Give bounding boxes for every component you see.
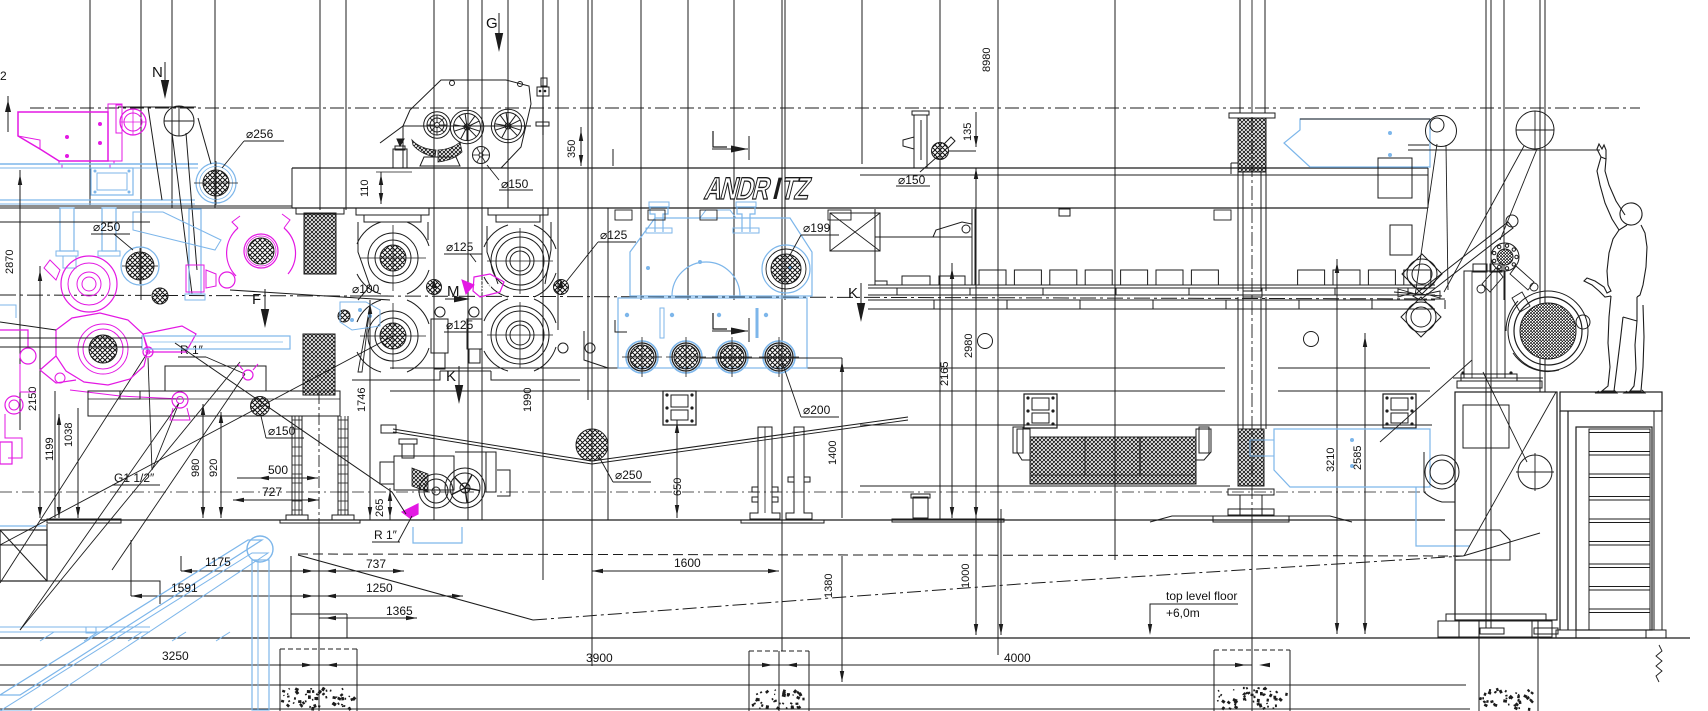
svg-text:1400: 1400 xyxy=(827,441,839,465)
svg-text:1000: 1000 xyxy=(960,564,972,588)
svg-text:G: G xyxy=(486,15,498,32)
svg-text:1038: 1038 xyxy=(63,423,75,447)
svg-text:top level floor: top level floor xyxy=(1166,589,1237,603)
svg-text:110: 110 xyxy=(359,179,371,197)
svg-text:N: N xyxy=(152,64,163,81)
svg-text:737: 737 xyxy=(366,557,386,571)
svg-text:⌀200: ⌀200 xyxy=(803,403,831,417)
svg-text:1199: 1199 xyxy=(44,437,56,461)
svg-text:1250: 1250 xyxy=(366,581,393,595)
svg-text:1365: 1365 xyxy=(386,604,413,618)
svg-text:1746: 1746 xyxy=(356,388,368,412)
svg-text:727: 727 xyxy=(262,485,282,499)
svg-text:⌀125: ⌀125 xyxy=(446,318,474,332)
svg-text:500: 500 xyxy=(268,463,288,477)
svg-text:R 1″: R 1″ xyxy=(374,528,398,542)
svg-text:920: 920 xyxy=(208,459,220,477)
svg-text:1600: 1600 xyxy=(674,556,701,570)
svg-text:650: 650 xyxy=(672,478,684,496)
svg-text:2150: 2150 xyxy=(27,387,39,411)
svg-text:1591: 1591 xyxy=(171,581,198,595)
svg-text:M: M xyxy=(447,283,460,300)
svg-text:2870: 2870 xyxy=(4,250,16,274)
svg-text:2165: 2165 xyxy=(939,362,951,386)
svg-text:⌀250: ⌀250 xyxy=(615,468,643,482)
svg-text:⌀100: ⌀100 xyxy=(352,282,380,296)
svg-text:265: 265 xyxy=(374,499,386,517)
svg-text:1175: 1175 xyxy=(205,555,231,569)
svg-text:K: K xyxy=(848,285,858,302)
svg-text:2980: 2980 xyxy=(963,334,975,358)
svg-text:980: 980 xyxy=(190,459,202,477)
svg-text:⌀150: ⌀150 xyxy=(268,424,296,438)
svg-text:4000: 4000 xyxy=(1004,651,1031,665)
svg-text:3210: 3210 xyxy=(1325,448,1337,472)
svg-text:+6,0m: +6,0m xyxy=(1166,606,1200,620)
svg-text:⌀256: ⌀256 xyxy=(246,127,274,141)
svg-text:3250: 3250 xyxy=(162,649,189,663)
svg-text:135: 135 xyxy=(962,123,974,141)
svg-text:⌀125: ⌀125 xyxy=(600,228,628,242)
svg-text:8980: 8980 xyxy=(981,48,993,72)
svg-text:⌀125: ⌀125 xyxy=(446,240,474,254)
svg-text:1380: 1380 xyxy=(823,574,835,598)
svg-text:⌀150: ⌀150 xyxy=(898,173,926,187)
svg-text:K: K xyxy=(446,368,456,385)
svg-text:F: F xyxy=(252,291,261,308)
svg-text:350: 350 xyxy=(566,140,578,158)
svg-text:2: 2 xyxy=(0,69,7,83)
svg-text:2585: 2585 xyxy=(1352,446,1364,470)
svg-text:⌀199: ⌀199 xyxy=(803,221,831,235)
svg-text:ANDR: ANDR xyxy=(702,171,775,205)
svg-text:1990: 1990 xyxy=(522,388,534,412)
svg-text:⌀150: ⌀150 xyxy=(501,177,529,191)
svg-text:3900: 3900 xyxy=(586,651,613,665)
